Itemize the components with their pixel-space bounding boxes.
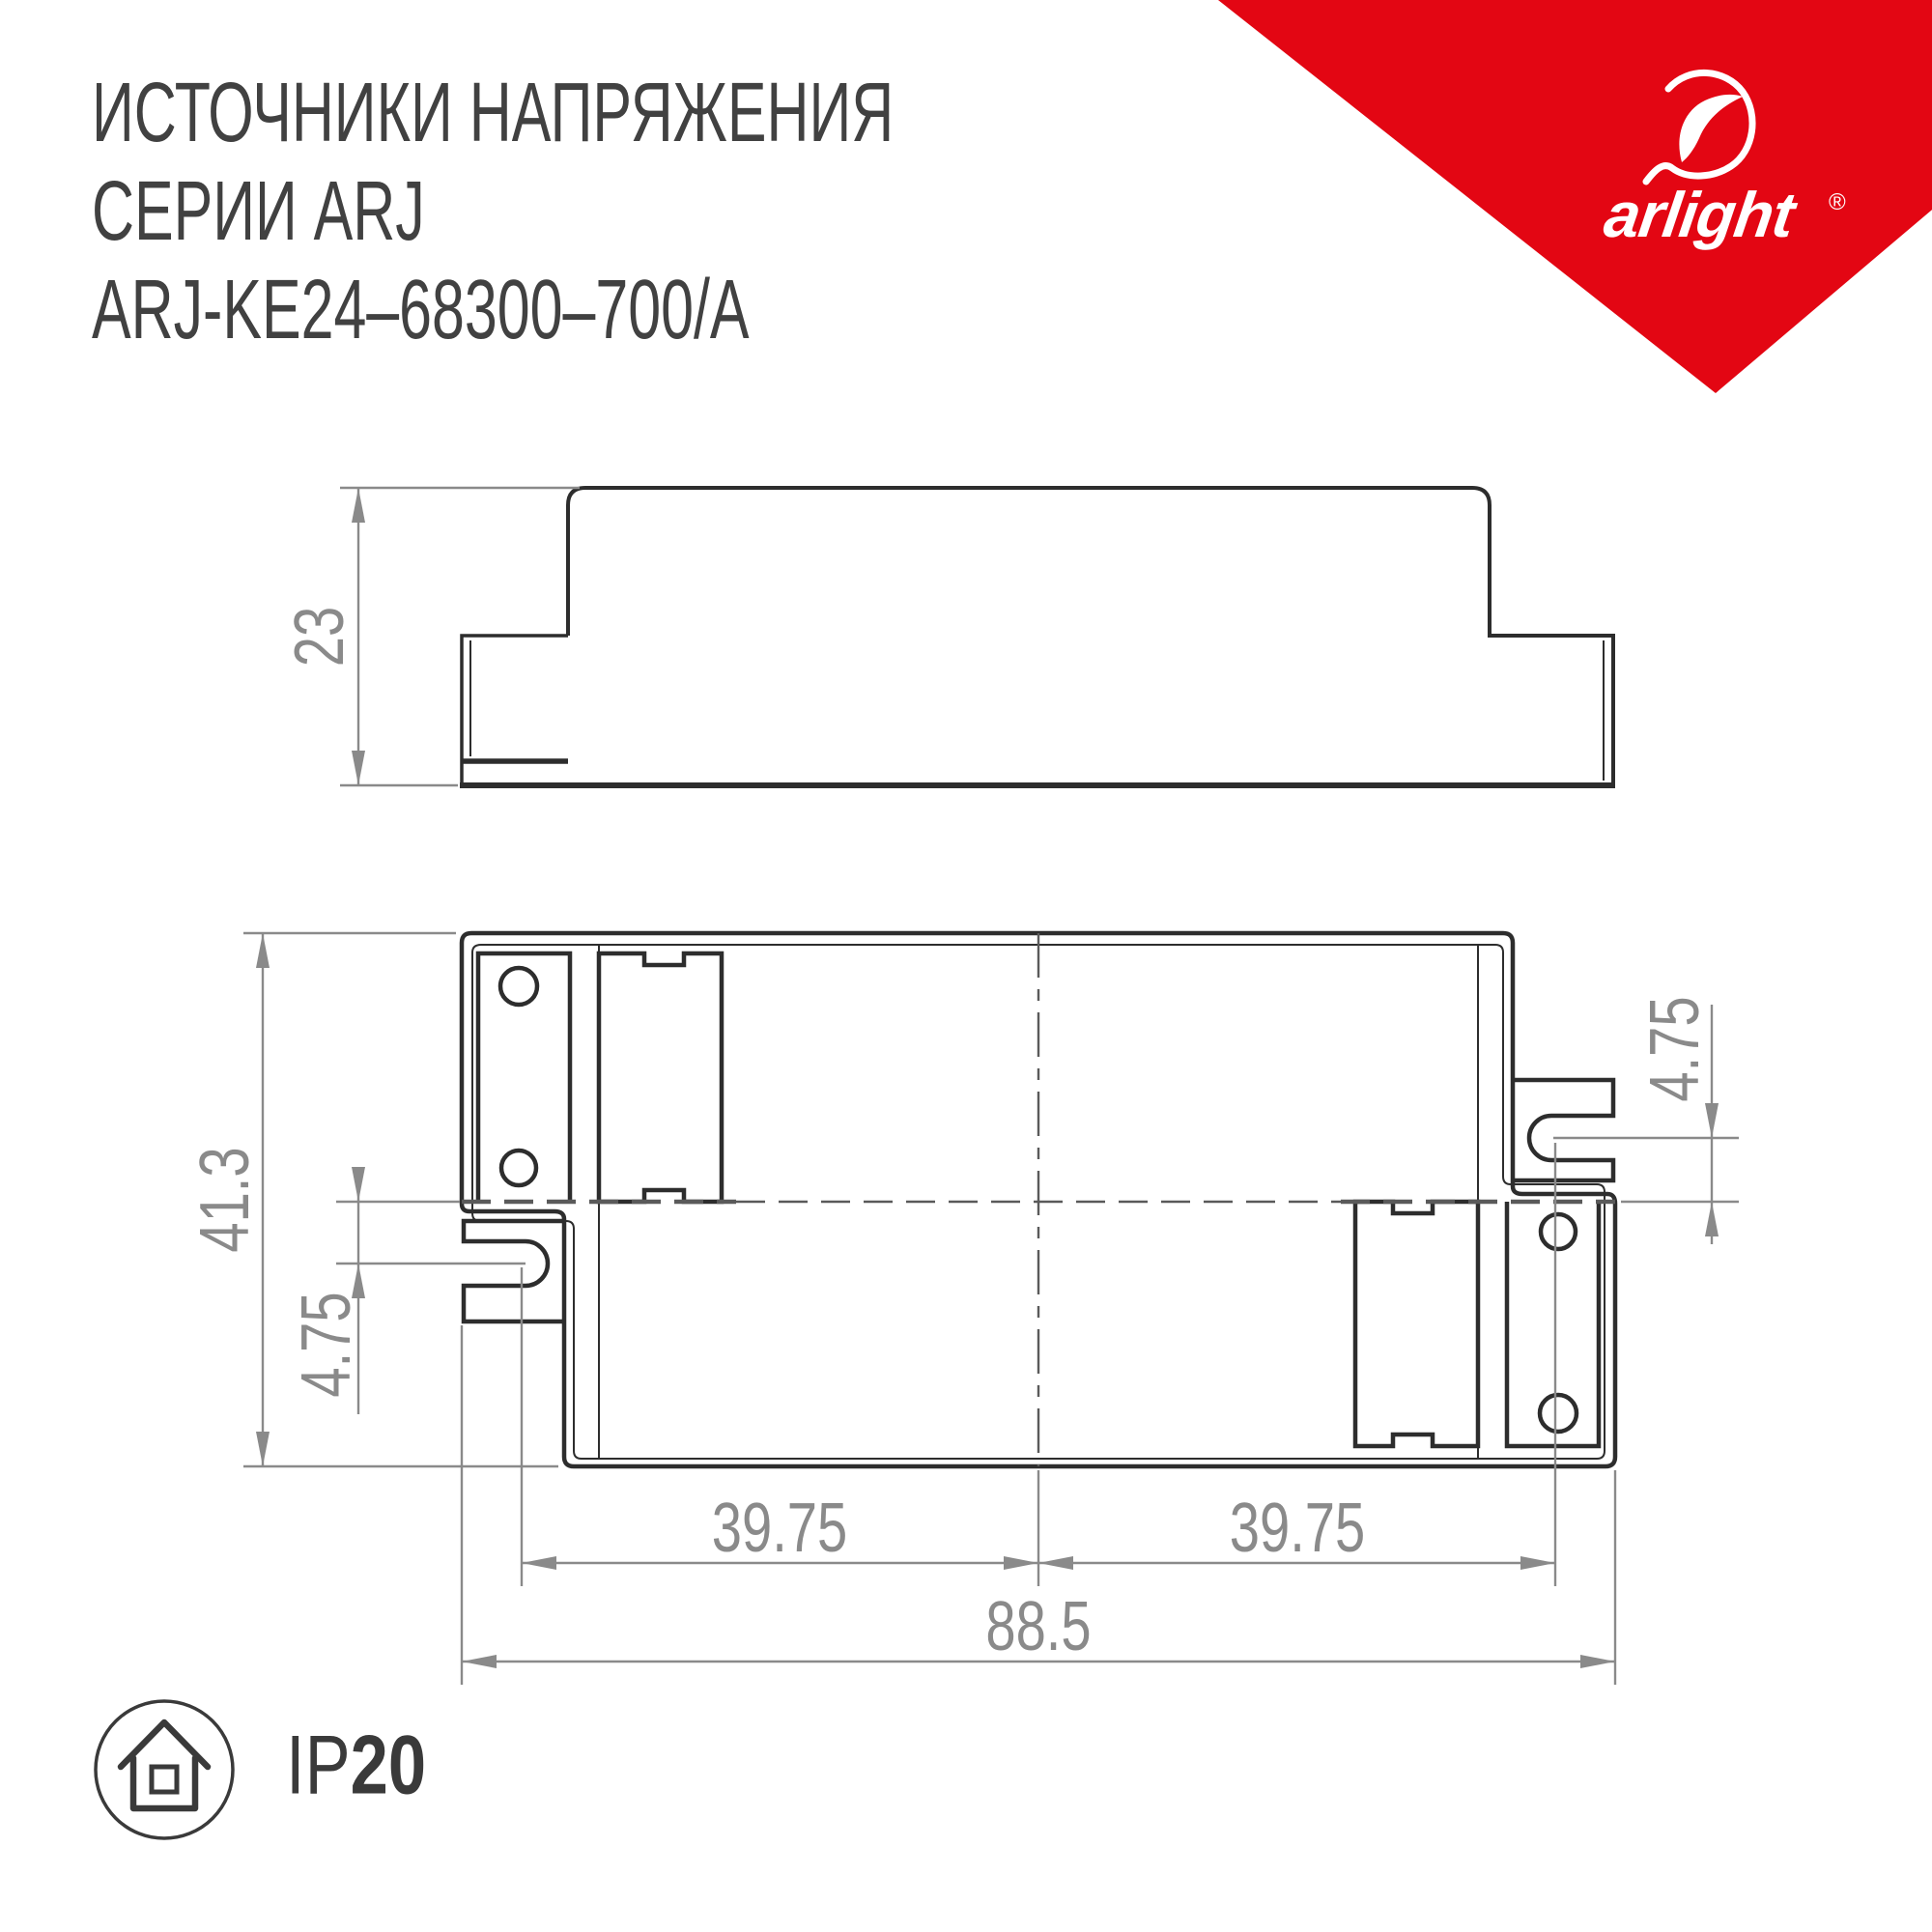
dim-label-slot-left: 4.75: [287, 1292, 366, 1397]
screw-hole: [1541, 1214, 1576, 1249]
house-icon: [121, 1722, 208, 1808]
mounting-tab-right: [1513, 1080, 1613, 1180]
screw-plate-left: [478, 953, 570, 1202]
ip-rating-label: IP20: [286, 1719, 426, 1814]
centerlines: [462, 933, 1615, 1466]
datasheet-page: arlight ® ИСТОЧНИКИ НАПРЯЖЕНИЯ СЕРИИ ARJ…: [0, 0, 1932, 1932]
dim-label-width-total: 88.5: [985, 1587, 1091, 1666]
ip-rating-value: 20: [351, 1719, 426, 1812]
dim-label-side-height: 23: [280, 607, 359, 667]
side-view-drawing: [460, 488, 1615, 785]
dim-label-slot-right: 4.75: [1635, 996, 1715, 1101]
dim-label-width-left: 39.75: [712, 1489, 848, 1568]
dim-label-width-right: 39.75: [1230, 1489, 1366, 1568]
connector-block-left: [599, 953, 722, 1202]
top-view-drawing: [462, 933, 1615, 1466]
dim-label-top-height: 41.3: [185, 1147, 265, 1252]
technical-drawing: [0, 0, 1932, 1932]
connector-block-right: [1355, 1202, 1478, 1446]
ip-rating-prefix: IP: [286, 1719, 351, 1812]
screw-hole: [1540, 1395, 1577, 1432]
mounting-tab-left: [464, 1221, 564, 1321]
screw-plate-right: [1507, 1202, 1599, 1446]
dimension-arrows: [256, 488, 1719, 1668]
screw-hole: [501, 1151, 536, 1185]
screw-hole: [500, 968, 537, 1005]
